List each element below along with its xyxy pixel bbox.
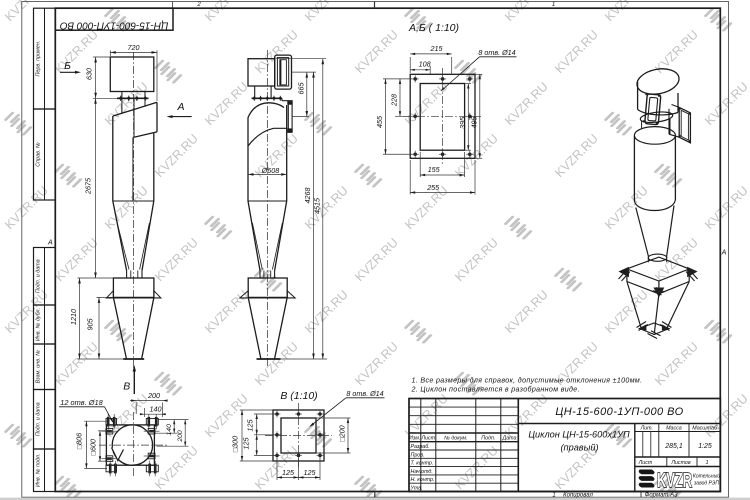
svg-text:Ø608: Ø608	[261, 166, 280, 175]
svg-text:Справ. №: Справ. №	[36, 142, 42, 167]
svg-text:200: 200	[177, 430, 184, 443]
svg-text:Инв. № подл.: Инв. № подл.	[36, 454, 42, 487]
svg-text:140: 140	[166, 424, 173, 436]
svg-text:255: 255	[426, 183, 440, 192]
svg-text:Взам. инв. №: Взам. инв. №	[36, 350, 42, 384]
svg-text:А,Б ( 1:10): А,Б ( 1:10)	[408, 22, 459, 34]
svg-text:ЦН-15-600-1УП-000 ВО: ЦН-15-600-1УП-000 ВО	[60, 20, 169, 31]
svg-text:В (1:10): В (1:10)	[280, 390, 317, 402]
svg-text:Формат А3: Формат А3	[645, 493, 678, 499]
svg-text:Лист: Лист	[420, 436, 435, 442]
svg-text:2. Циклон поставляется в разо: 2. Циклон поставляется в разобранном вид…	[411, 386, 580, 394]
svg-text:Б: Б	[64, 60, 71, 72]
svg-text:1. Все размеры для справок, д: 1. Все размеры для справок, допустимые о…	[412, 376, 643, 384]
svg-text:2675: 2675	[83, 177, 92, 195]
svg-text:12 отв. Ø18: 12 отв. Ø18	[60, 398, 103, 407]
svg-text:1: 1	[705, 460, 708, 466]
svg-text:630: 630	[84, 68, 93, 80]
svg-text:215: 215	[430, 44, 444, 53]
svg-text:Инв. № дубл.: Инв. № дубл.	[36, 308, 42, 341]
svg-text:Листов: Листов	[670, 460, 691, 466]
svg-text:Циклон ЦН-15-600х1УП: Циклон ЦН-15-600х1УП	[528, 430, 630, 440]
svg-text:Т. контр.: Т. контр.	[411, 461, 434, 467]
svg-text:А: А	[176, 101, 184, 113]
svg-text:155: 155	[428, 165, 441, 174]
svg-text:А: А	[47, 240, 53, 247]
svg-text:2: 2	[196, 2, 201, 8]
svg-text:665: 665	[296, 82, 305, 95]
svg-text:Подп. и дата: Подп. и дата	[36, 259, 42, 293]
svg-text:108: 108	[419, 60, 431, 69]
svg-text:Котельный: Котельный	[693, 473, 720, 480]
svg-text:125: 125	[282, 468, 295, 477]
svg-text:720: 720	[128, 43, 140, 52]
svg-text:ЦН-15-600-1УП-000 ВО: ЦН-15-600-1УП-000 ВО	[555, 406, 683, 418]
svg-text:Нач.отд.: Нач.отд.	[411, 469, 433, 475]
svg-text:Лит.: Лит.	[640, 426, 653, 432]
svg-text:KVZR: KVZR	[657, 470, 692, 492]
svg-text:Изм.: Изм.	[409, 436, 420, 442]
svg-text:№ докум.: № докум.	[444, 436, 467, 442]
svg-text:Масштаб: Масштаб	[692, 426, 718, 432]
svg-text:□300: □300	[230, 436, 239, 452]
svg-text:8 отв. Ø14: 8 отв. Ø14	[478, 48, 515, 57]
svg-text:В: В	[123, 381, 130, 393]
svg-text:905: 905	[86, 318, 95, 331]
svg-text:завод РЭП: завод РЭП	[693, 481, 719, 487]
svg-text:Дата: Дата	[502, 436, 517, 442]
svg-text:8 отв. Ø14: 8 отв. Ø14	[346, 389, 383, 398]
svg-text:1:25: 1:25	[698, 443, 712, 450]
svg-text:455: 455	[375, 115, 384, 128]
svg-text:Масса: Масса	[666, 426, 682, 432]
svg-text:□806: □806	[75, 433, 84, 449]
svg-text:125: 125	[304, 468, 317, 477]
svg-text:(правый): (правый)	[560, 443, 598, 453]
svg-text:285,1: 285,1	[664, 443, 683, 450]
svg-text:200: 200	[147, 391, 160, 400]
svg-text:Н. контр.: Н. контр.	[411, 477, 435, 483]
svg-text:395: 395	[458, 116, 467, 129]
svg-text:228: 228	[390, 94, 399, 107]
svg-text:125: 125	[245, 419, 254, 432]
svg-text:1: 1	[552, 493, 555, 499]
svg-text:Лист: Лист	[638, 460, 653, 466]
svg-text:1: 1	[552, 2, 555, 8]
svg-text:А: А	[721, 250, 727, 257]
svg-text:140: 140	[150, 404, 162, 413]
svg-text:Подп. и дата: Подп. и дата	[36, 402, 42, 436]
svg-text:Копировал: Копировал	[563, 493, 593, 499]
svg-text:Утв.: Утв.	[411, 486, 423, 492]
svg-text:125: 125	[242, 437, 251, 450]
svg-text:4268: 4268	[303, 188, 312, 204]
svg-text:4515: 4515	[312, 197, 321, 214]
svg-text:Разраб.: Разраб.	[411, 444, 430, 450]
svg-text:1210: 1210	[69, 309, 78, 325]
svg-text:495: 495	[469, 116, 478, 129]
svg-text:□600: □600	[88, 439, 97, 455]
svg-text:□200: □200	[337, 425, 346, 441]
svg-text:Подп.: Подп.	[481, 436, 495, 442]
svg-text:Пров.: Пров.	[411, 452, 425, 458]
svg-text:Перв. примен.: Перв. примен.	[36, 41, 42, 77]
